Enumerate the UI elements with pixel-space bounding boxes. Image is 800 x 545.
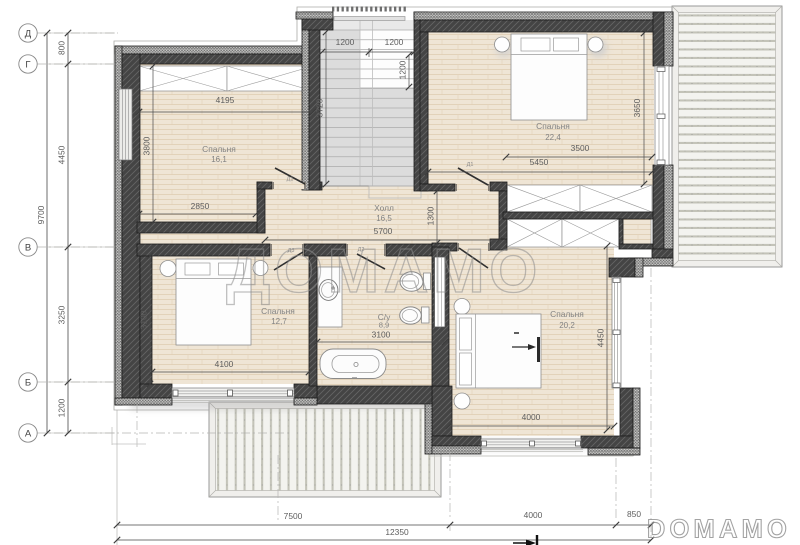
svg-text:3100: 3100: [372, 330, 391, 340]
svg-text:16,5: 16,5: [376, 214, 392, 223]
svg-text:12350: 12350: [385, 527, 409, 537]
svg-text:1200: 1200: [57, 398, 67, 417]
svg-text:Холл: Холл: [374, 203, 394, 213]
svg-text:Спальня: Спальня: [202, 144, 236, 154]
svg-text:Д1: Д1: [467, 162, 474, 168]
svg-text:8,9: 8,9: [379, 321, 390, 330]
svg-text:4000: 4000: [522, 412, 541, 422]
svg-text:3100: 3100: [139, 310, 149, 329]
svg-text:4450: 4450: [596, 328, 606, 347]
svg-text:3250: 3250: [57, 305, 67, 324]
svg-text:9700: 9700: [36, 205, 46, 224]
svg-text:ДОМАМО: ДОМАМО: [226, 237, 542, 306]
svg-text:800: 800: [57, 41, 67, 55]
svg-text:1200: 1200: [385, 37, 404, 47]
svg-text:Г: Г: [25, 59, 30, 70]
svg-text:850: 850: [627, 509, 641, 519]
svg-text:Спальня: Спальня: [536, 121, 570, 131]
svg-text:3800: 3800: [142, 136, 152, 155]
svg-text:В: В: [25, 242, 31, 253]
svg-text:22,4: 22,4: [545, 133, 561, 142]
svg-text:4450: 4450: [57, 145, 67, 164]
svg-text:4000: 4000: [524, 510, 543, 520]
svg-text:16,1: 16,1: [211, 155, 227, 164]
svg-text:1300: 1300: [426, 206, 436, 225]
svg-text:20,2: 20,2: [559, 321, 575, 330]
svg-text:7500: 7500: [284, 511, 303, 521]
svg-text:4100: 4100: [215, 359, 234, 369]
svg-text:3500: 3500: [571, 143, 590, 153]
svg-text:Д: Д: [25, 28, 32, 39]
svg-text:Спальня: Спальня: [261, 306, 295, 316]
svg-text:12,7: 12,7: [271, 317, 287, 326]
svg-text:2850: 2850: [191, 201, 210, 211]
svg-text:Б: Б: [25, 377, 31, 388]
svg-text:3650: 3650: [632, 98, 642, 117]
svg-text:Д1: Д1: [287, 177, 294, 183]
svg-text:DOMAMO: DOMAMO: [647, 516, 791, 544]
svg-text:4195: 4195: [216, 95, 235, 105]
svg-text:5700: 5700: [374, 226, 393, 236]
svg-text:Спальня: Спальня: [550, 309, 584, 319]
svg-text:1200: 1200: [336, 37, 355, 47]
svg-text:А: А: [25, 428, 32, 439]
svg-text:3720: 3720: [315, 98, 325, 117]
svg-text:5450: 5450: [530, 157, 549, 167]
svg-text:1200: 1200: [398, 60, 408, 79]
